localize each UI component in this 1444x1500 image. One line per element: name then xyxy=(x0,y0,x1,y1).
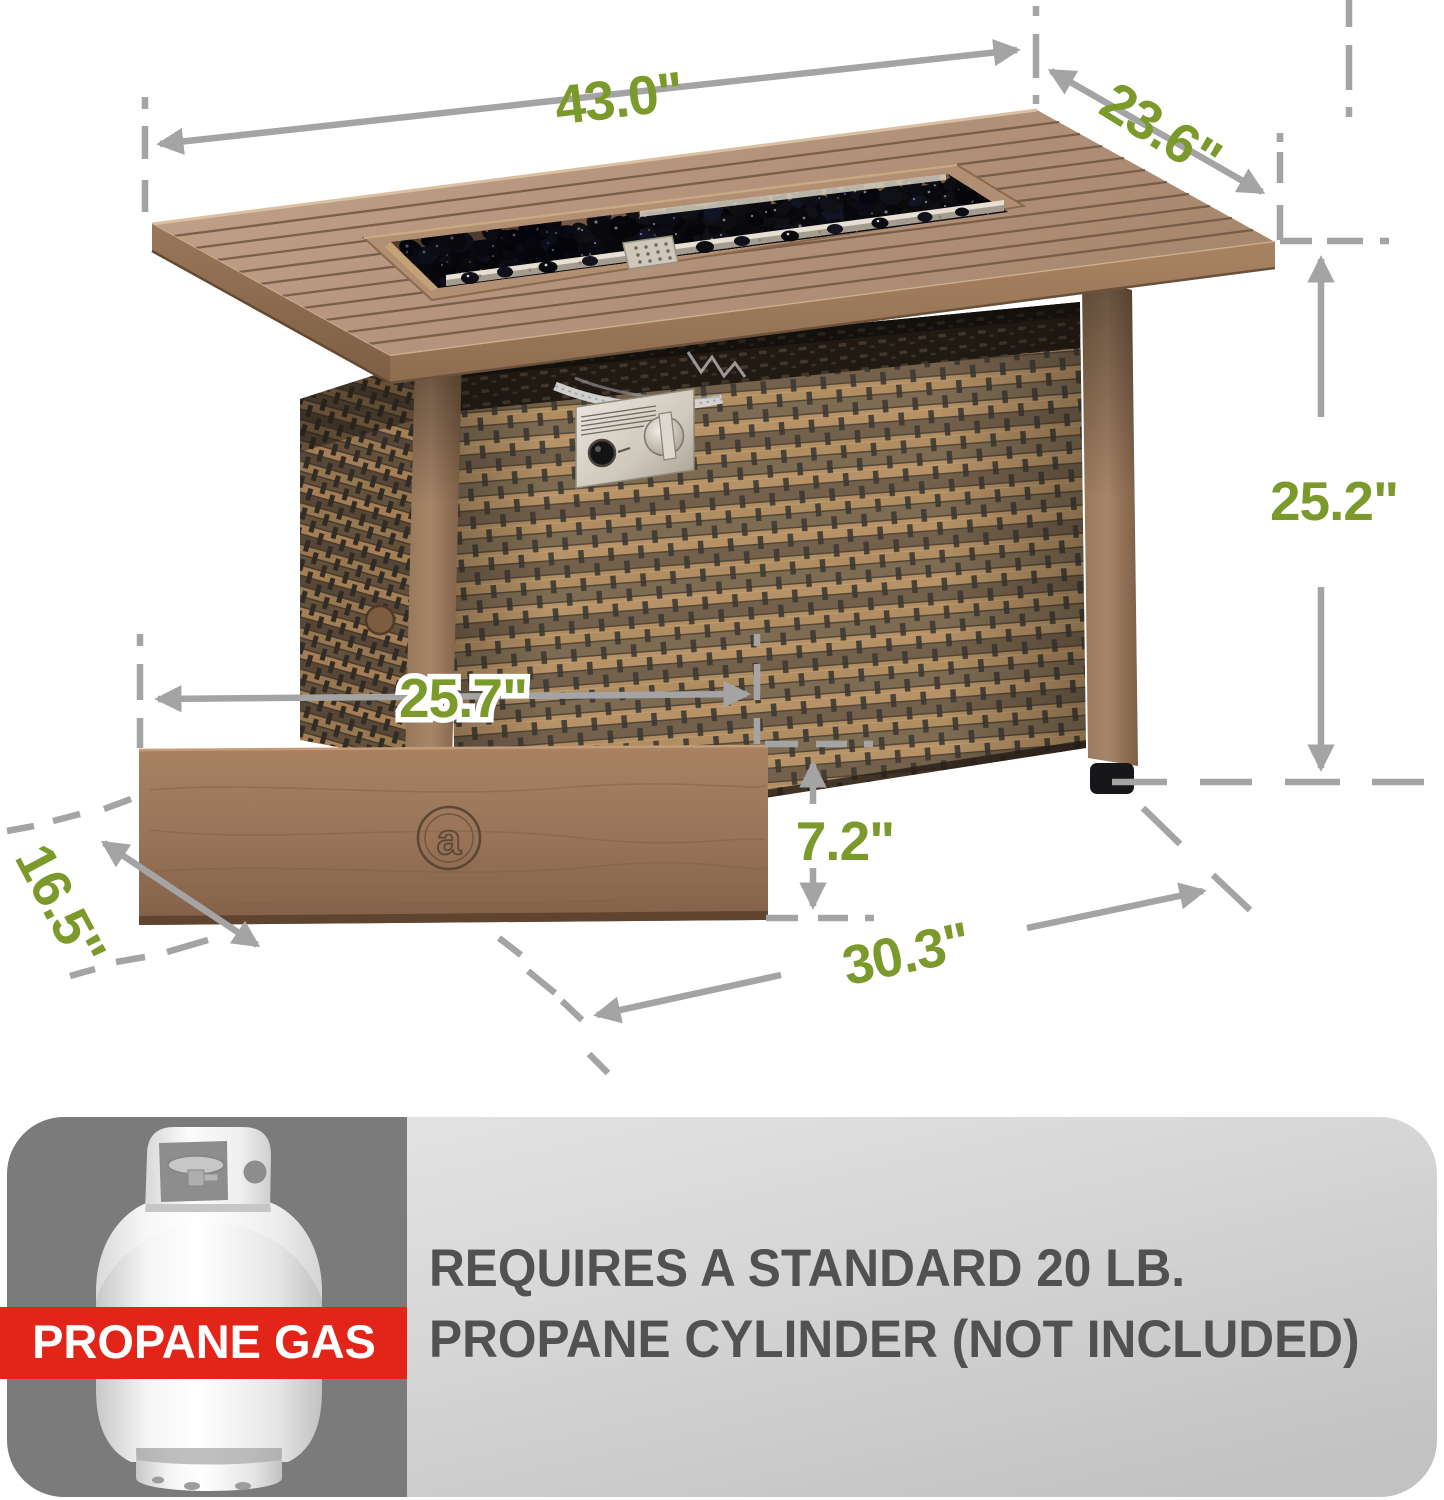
svg-text:REQUIRES A STANDARD 20 LB.: REQUIRES A STANDARD 20 LB. xyxy=(429,1239,1185,1298)
svg-text:PROPANE GAS: PROPANE GAS xyxy=(32,1315,376,1368)
svg-text:PROPANE CYLINDER (NOT INCLUDED: PROPANE CYLINDER (NOT INCLUDED) xyxy=(429,1310,1360,1369)
svg-text:a: a xyxy=(437,815,462,864)
svg-text:25.2": 25.2" xyxy=(1270,470,1398,532)
svg-text:25.7": 25.7" xyxy=(399,667,527,729)
svg-text:7.2": 7.2" xyxy=(796,810,895,872)
